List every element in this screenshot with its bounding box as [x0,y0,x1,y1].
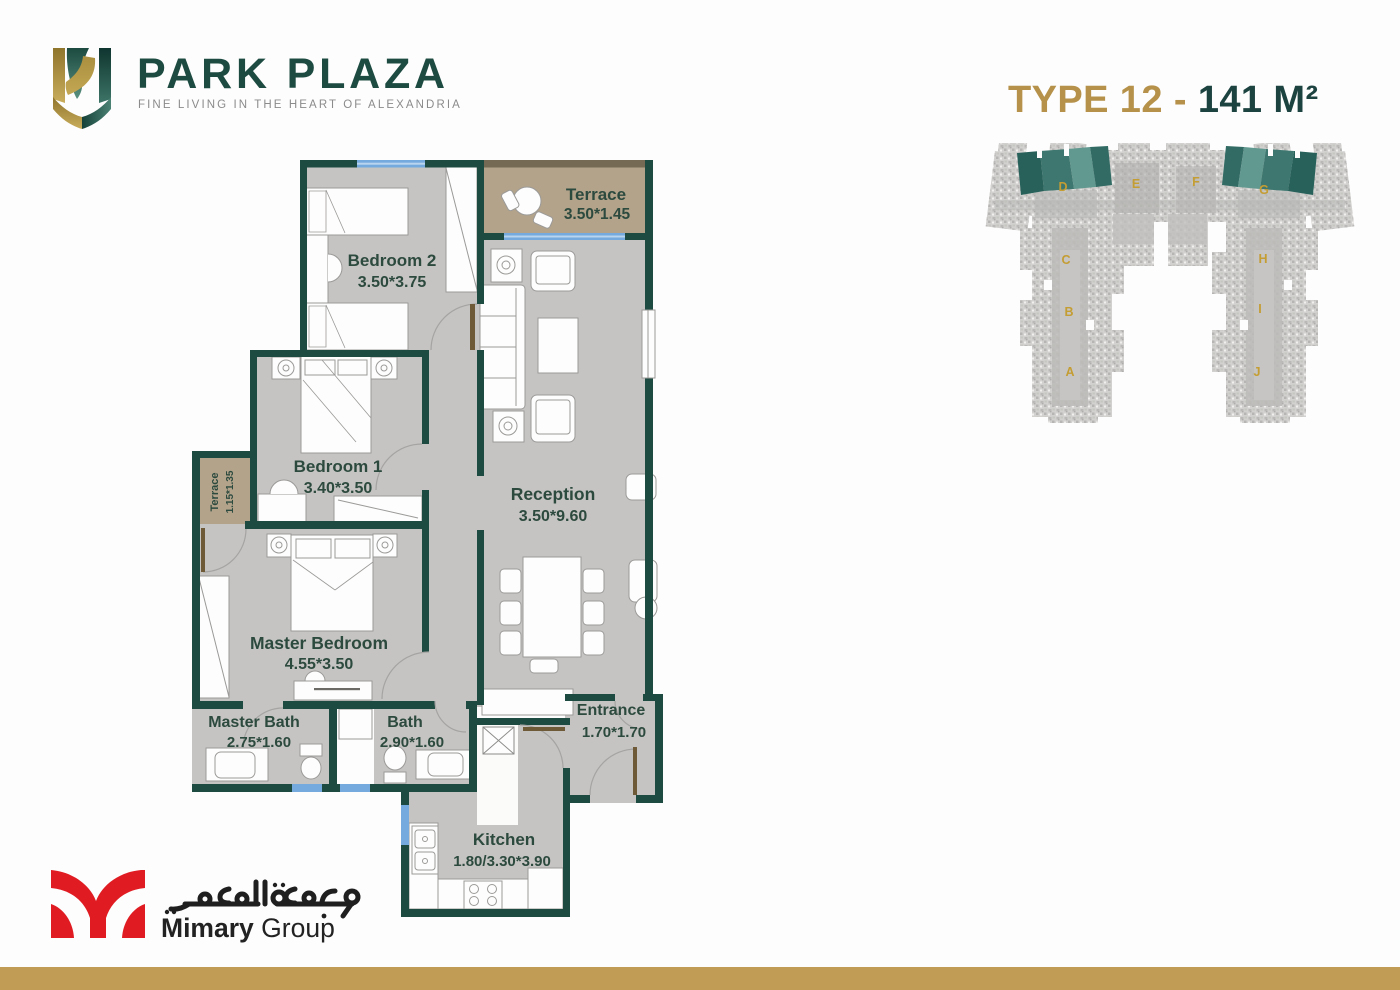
svg-text:3.50*1.45: 3.50*1.45 [564,206,631,223]
svg-text:Master Bedroom: Master Bedroom [250,633,388,653]
svg-text:Kitchen: Kitchen [473,830,535,849]
svg-text:G: G [1259,183,1269,197]
svg-text:H: H [1258,252,1267,266]
svg-text:E: E [1132,177,1140,191]
svg-text:A: A [1065,365,1074,379]
svg-text:D: D [1058,180,1067,194]
svg-text:3.50*9.60: 3.50*9.60 [519,508,588,525]
svg-text:Bedroom 2: Bedroom 2 [348,251,437,270]
svg-text:1.70*1.70: 1.70*1.70 [582,724,646,741]
svg-text:Bedroom 1: Bedroom 1 [294,457,383,476]
svg-text:C: C [1061,253,1070,267]
svg-text:Bath: Bath [387,714,423,731]
svg-text:J: J [1254,365,1261,379]
svg-text:4.55*3.50: 4.55*3.50 [285,656,354,673]
svg-text:3.50*3.75: 3.50*3.75 [358,274,427,291]
svg-text:I: I [1258,302,1261,316]
svg-text:Reception: Reception [511,484,596,504]
svg-text:Master Bath: Master Bath [208,714,300,731]
svg-text:3.40*3.50: 3.40*3.50 [304,480,373,497]
svg-text:Terrace: Terrace [566,185,626,204]
svg-text:B: B [1064,305,1073,319]
svg-text:F: F [1192,175,1200,189]
svg-text:1.80/3.30*3.90: 1.80/3.30*3.90 [453,853,551,870]
svg-text:Entrance: Entrance [577,702,646,719]
svg-text:2.90*1.60: 2.90*1.60 [380,734,444,751]
svg-text:1.15*1.35: 1.15*1.35 [225,470,236,513]
svg-text:Terrace: Terrace [209,473,221,512]
svg-text:2.75*1.60: 2.75*1.60 [227,734,291,751]
